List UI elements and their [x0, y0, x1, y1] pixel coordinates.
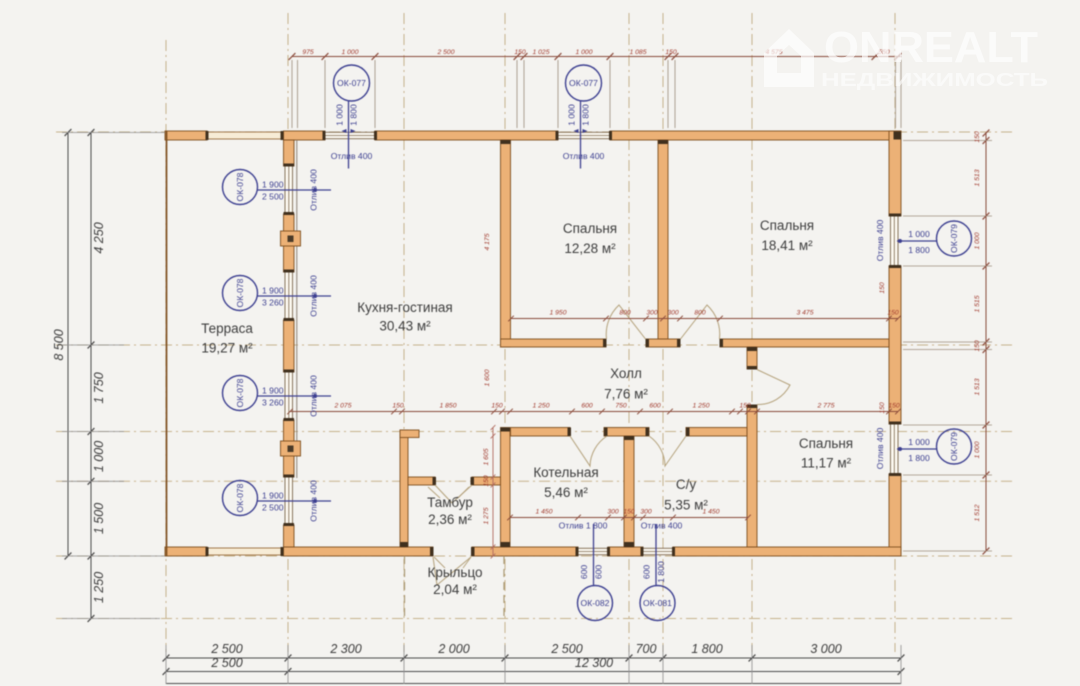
svg-text:2 300: 2 300: [329, 642, 361, 656]
svg-text:150: 150: [623, 509, 635, 516]
svg-text:3 000: 3 000: [810, 642, 841, 656]
svg-text:2 500: 2 500: [262, 192, 284, 202]
svg-text:600: 600: [642, 565, 652, 580]
svg-text:ОК-082: ОК-082: [581, 598, 610, 608]
svg-text:1 900: 1 900: [262, 386, 284, 396]
svg-text:1 500: 1 500: [92, 503, 106, 534]
svg-text:Отлив 400: Отлив 400: [309, 169, 319, 211]
svg-text:150: 150: [483, 475, 490, 487]
svg-text:1 600: 1 600: [484, 369, 491, 386]
svg-text:1 900: 1 900: [262, 286, 284, 296]
svg-text:5,35 м²: 5,35 м²: [664, 498, 708, 513]
svg-text:4 175: 4 175: [484, 233, 491, 250]
svg-text:Спальня: Спальня: [563, 221, 617, 236]
svg-text:1 450: 1 450: [535, 509, 552, 516]
svg-text:ОК-079: ОК-079: [949, 224, 959, 253]
svg-text:150: 150: [974, 131, 981, 143]
svg-text:300: 300: [640, 509, 652, 516]
svg-text:ОК-081: ОК-081: [643, 598, 672, 608]
svg-text:18,41 м²: 18,41 м²: [761, 238, 813, 253]
svg-text:19,27 м²: 19,27 м²: [201, 341, 253, 356]
svg-text:1 900: 1 900: [262, 180, 284, 190]
svg-text:2 075: 2 075: [333, 403, 351, 410]
svg-text:975: 975: [302, 49, 314, 56]
svg-text:Спальня: Спальня: [760, 218, 814, 233]
svg-text:1 750: 1 750: [92, 372, 106, 403]
svg-text:ОК-078: ОК-078: [235, 172, 245, 201]
svg-text:1 950: 1 950: [549, 310, 566, 317]
svg-text:300: 300: [646, 310, 658, 317]
svg-text:150: 150: [514, 49, 526, 56]
svg-text:11,17 м²: 11,17 м²: [801, 456, 852, 471]
svg-text:1 513: 1 513: [974, 169, 981, 186]
svg-text:1 515: 1 515: [974, 295, 981, 312]
svg-text:1 275: 1 275: [483, 507, 490, 524]
svg-text:600: 600: [594, 565, 604, 580]
svg-text:ОК-078: ОК-078: [235, 483, 245, 512]
svg-text:600: 600: [579, 565, 589, 580]
svg-text:150: 150: [879, 402, 886, 414]
svg-text:1 250: 1 250: [532, 403, 549, 410]
svg-text:2 500: 2 500: [210, 656, 242, 670]
svg-text:Холл: Холл: [610, 366, 642, 381]
svg-text:ОК-077: ОК-077: [337, 78, 366, 88]
svg-text:12,28 м²: 12,28 м²: [564, 241, 616, 256]
svg-text:7,76 м²: 7,76 м²: [604, 387, 648, 402]
svg-text:1 800: 1 800: [581, 104, 591, 126]
svg-text:2 000: 2 000: [437, 642, 469, 656]
svg-text:1 800: 1 800: [349, 104, 359, 126]
svg-text:ОК-079: ОК-079: [949, 432, 959, 461]
svg-text:1 000: 1 000: [341, 49, 358, 56]
svg-text:1 000: 1 000: [575, 49, 592, 56]
svg-text:3 260: 3 260: [262, 398, 284, 408]
svg-text:1 000: 1 000: [92, 441, 106, 472]
svg-text:600: 600: [649, 403, 661, 410]
svg-text:Отлив 400: Отлив 400: [309, 375, 319, 417]
svg-text:Отлив 400: Отлив 400: [309, 275, 319, 317]
svg-text:1 085: 1 085: [629, 49, 646, 56]
svg-text:ONREALT: ONREALT: [824, 23, 1038, 72]
svg-text:С/у: С/у: [676, 477, 697, 492]
svg-text:150: 150: [974, 340, 981, 352]
svg-text:800: 800: [619, 310, 631, 317]
svg-text:1 000: 1 000: [908, 229, 930, 239]
svg-text:Отлив 1 800: Отлив 1 800: [559, 521, 608, 531]
svg-text:600: 600: [581, 403, 593, 410]
svg-text:150: 150: [392, 403, 404, 410]
svg-text:1 513: 1 513: [974, 378, 981, 395]
svg-text:Отлив 400: Отлив 400: [875, 428, 885, 470]
svg-text:12 300: 12 300: [575, 656, 613, 670]
svg-text:Крыльцо: Крыльцо: [427, 565, 482, 580]
svg-text:150: 150: [887, 310, 899, 317]
svg-text:300: 300: [667, 310, 679, 317]
svg-text:1 900: 1 900: [262, 491, 284, 501]
svg-text:150: 150: [739, 403, 751, 410]
svg-text:2 775: 2 775: [816, 403, 834, 410]
svg-text:ОК-078: ОК-078: [235, 378, 245, 407]
svg-text:2 500: 2 500: [210, 642, 242, 656]
svg-text:2 500: 2 500: [436, 49, 454, 56]
svg-text:1 000: 1 000: [974, 232, 981, 249]
svg-text:1 000: 1 000: [908, 437, 930, 447]
svg-text:Спальня: Спальня: [799, 436, 853, 451]
svg-text:Отлив 400: Отлив 400: [875, 220, 885, 262]
svg-text:1 850: 1 850: [439, 403, 456, 410]
svg-text:1 512: 1 512: [974, 504, 981, 521]
svg-text:Тамбур: Тамбур: [427, 495, 473, 510]
svg-text:1 000: 1 000: [335, 104, 345, 126]
svg-text:ОК-077: ОК-077: [569, 78, 598, 88]
svg-text:1 800: 1 800: [908, 453, 930, 463]
svg-text:Котельная: Котельная: [533, 465, 598, 480]
svg-text:Терраса: Терраса: [201, 321, 253, 336]
svg-text:Отлив 400: Отлив 400: [563, 151, 605, 161]
svg-text:1 800: 1 800: [656, 561, 666, 583]
svg-text:30,43 м²: 30,43 м²: [379, 319, 431, 334]
svg-text:1 605: 1 605: [483, 448, 490, 465]
svg-text:Кухня-гостиная: Кухня-гостиная: [357, 300, 453, 315]
svg-text:НЕДВИЖИМОСТЬ: НЕДВИЖИМОСТЬ: [821, 70, 1048, 90]
svg-text:800: 800: [694, 310, 706, 317]
svg-text:150: 150: [491, 403, 503, 410]
svg-text:700: 700: [636, 642, 657, 656]
svg-text:2 500: 2 500: [262, 503, 284, 513]
svg-text:1 250: 1 250: [692, 403, 709, 410]
svg-text:2,36 м²: 2,36 м²: [428, 512, 472, 527]
svg-text:4 250: 4 250: [92, 222, 106, 253]
svg-text:150: 150: [665, 49, 677, 56]
svg-text:1 800: 1 800: [908, 245, 930, 255]
svg-text:3 475: 3 475: [796, 310, 813, 317]
svg-text:300: 300: [607, 509, 619, 516]
svg-text:ОК-078: ОК-078: [235, 278, 245, 307]
svg-text:2,04 м²: 2,04 м²: [433, 582, 477, 597]
svg-text:2 500: 2 500: [550, 642, 582, 656]
svg-text:1 025: 1 025: [532, 49, 549, 56]
svg-text:3 260: 3 260: [262, 298, 284, 308]
svg-text:1 800: 1 800: [691, 642, 722, 656]
svg-text:5,46 м²: 5,46 м²: [544, 485, 588, 500]
svg-text:750: 750: [615, 403, 627, 410]
svg-text:1 000: 1 000: [567, 104, 577, 126]
svg-text:Отлив 400: Отлив 400: [641, 521, 683, 531]
svg-text:Отлив 400: Отлив 400: [331, 151, 373, 161]
svg-text:150: 150: [879, 282, 886, 294]
svg-text:Отлив 400: Отлив 400: [309, 480, 319, 522]
svg-text:150: 150: [888, 403, 900, 410]
svg-text:1 000: 1 000: [974, 441, 981, 458]
svg-text:1 250: 1 250: [92, 572, 106, 603]
